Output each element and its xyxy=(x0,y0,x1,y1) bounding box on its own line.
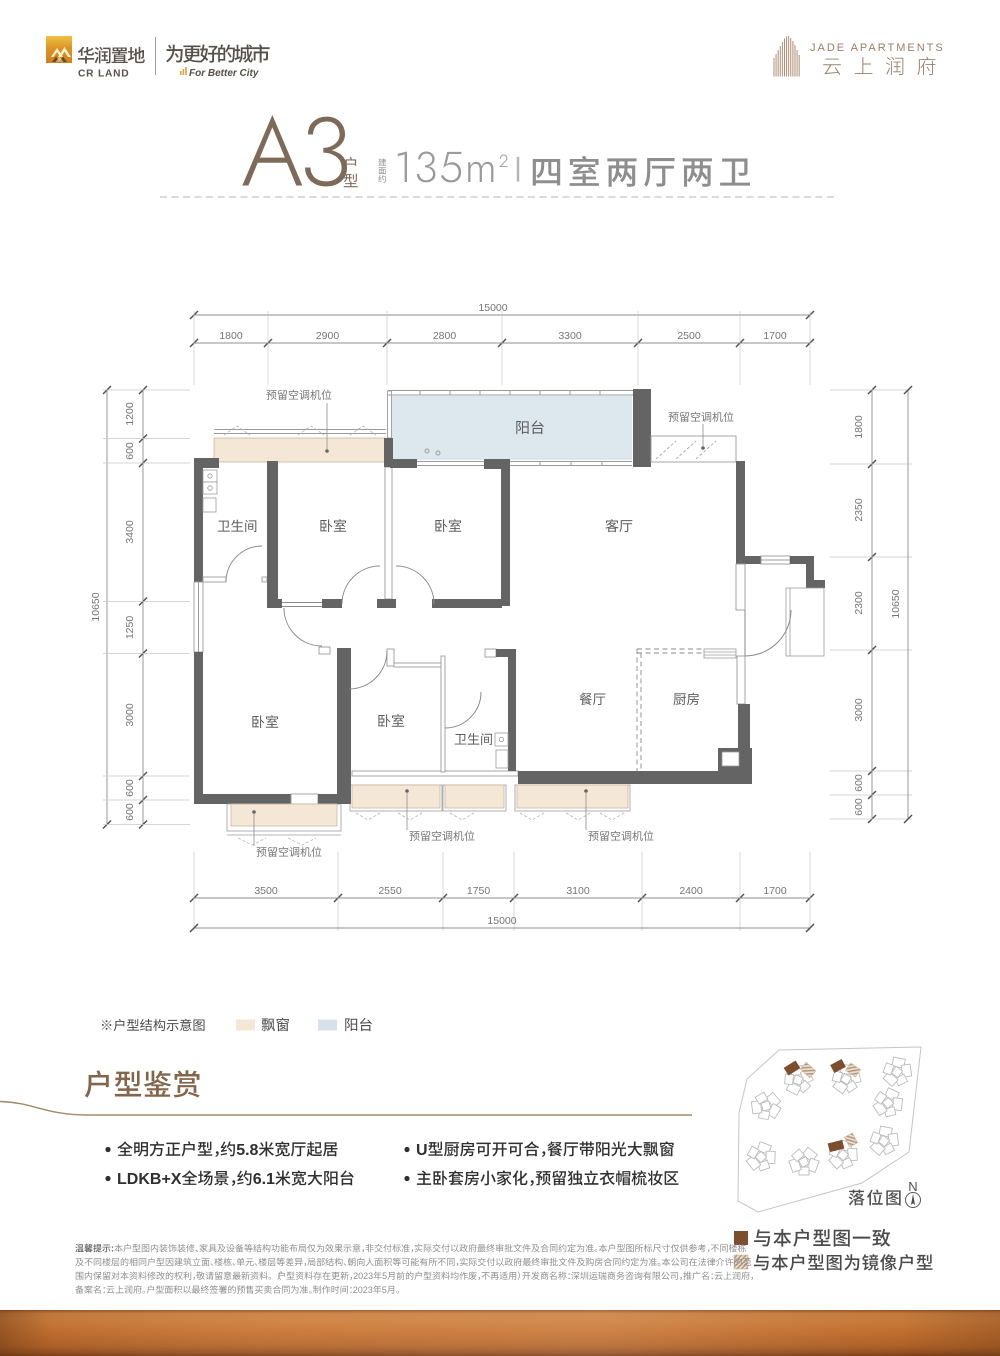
svg-text:10650: 10650 xyxy=(90,592,102,621)
svg-text:5: 5 xyxy=(382,1285,387,1295)
svg-text:1700: 1700 xyxy=(763,885,787,897)
svg-text:1750: 1750 xyxy=(467,885,491,897)
svg-text:1200: 1200 xyxy=(124,402,136,426)
svg-text:2300: 2300 xyxy=(853,591,865,615)
svg-text:15000: 15000 xyxy=(487,915,516,927)
svg-text:2550: 2550 xyxy=(378,885,402,897)
svg-text:U: U xyxy=(416,1142,428,1159)
svg-text:1250: 1250 xyxy=(124,616,136,640)
svg-text:1700: 1700 xyxy=(763,330,787,342)
svg-text:600: 600 xyxy=(124,803,136,821)
svg-text:For Better City: For Better City xyxy=(189,68,259,79)
svg-text:600: 600 xyxy=(124,779,136,797)
svg-text:5: 5 xyxy=(382,1271,387,1281)
svg-text:15000: 15000 xyxy=(478,302,507,314)
svg-text:2023: 2023 xyxy=(353,1271,373,1281)
svg-text:1800: 1800 xyxy=(219,330,243,342)
svg-text:3300: 3300 xyxy=(558,330,582,342)
svg-text:5.8: 5.8 xyxy=(236,1142,258,1159)
svg-text:3400: 3400 xyxy=(124,520,136,544)
svg-text:3100: 3100 xyxy=(566,885,590,897)
svg-text:600: 600 xyxy=(853,798,865,816)
svg-text:2350: 2350 xyxy=(853,498,865,522)
svg-text:1800: 1800 xyxy=(853,415,865,439)
svg-text:CR LAND: CR LAND xyxy=(78,69,129,80)
svg-text:2800: 2800 xyxy=(433,330,457,342)
svg-text:2400: 2400 xyxy=(679,885,703,897)
svg-text:JADE APARTMENTS: JADE APARTMENTS xyxy=(810,42,945,54)
svg-text::: : xyxy=(111,1244,114,1254)
svg-text:2500: 2500 xyxy=(677,330,701,342)
svg-text:3500: 3500 xyxy=(254,885,278,897)
svg-text:600: 600 xyxy=(853,774,865,792)
svg-text:2023: 2023 xyxy=(353,1285,373,1295)
svg-text:10650: 10650 xyxy=(890,589,902,618)
svg-text:LDKB+X: LDKB+X xyxy=(117,1171,182,1188)
svg-text:6.1: 6.1 xyxy=(253,1171,275,1188)
svg-text:3000: 3000 xyxy=(124,703,136,727)
svg-text:N: N xyxy=(908,1179,917,1194)
svg-text:2900: 2900 xyxy=(316,330,340,342)
svg-text:600: 600 xyxy=(124,442,136,460)
svg-text:3000: 3000 xyxy=(853,698,865,722)
